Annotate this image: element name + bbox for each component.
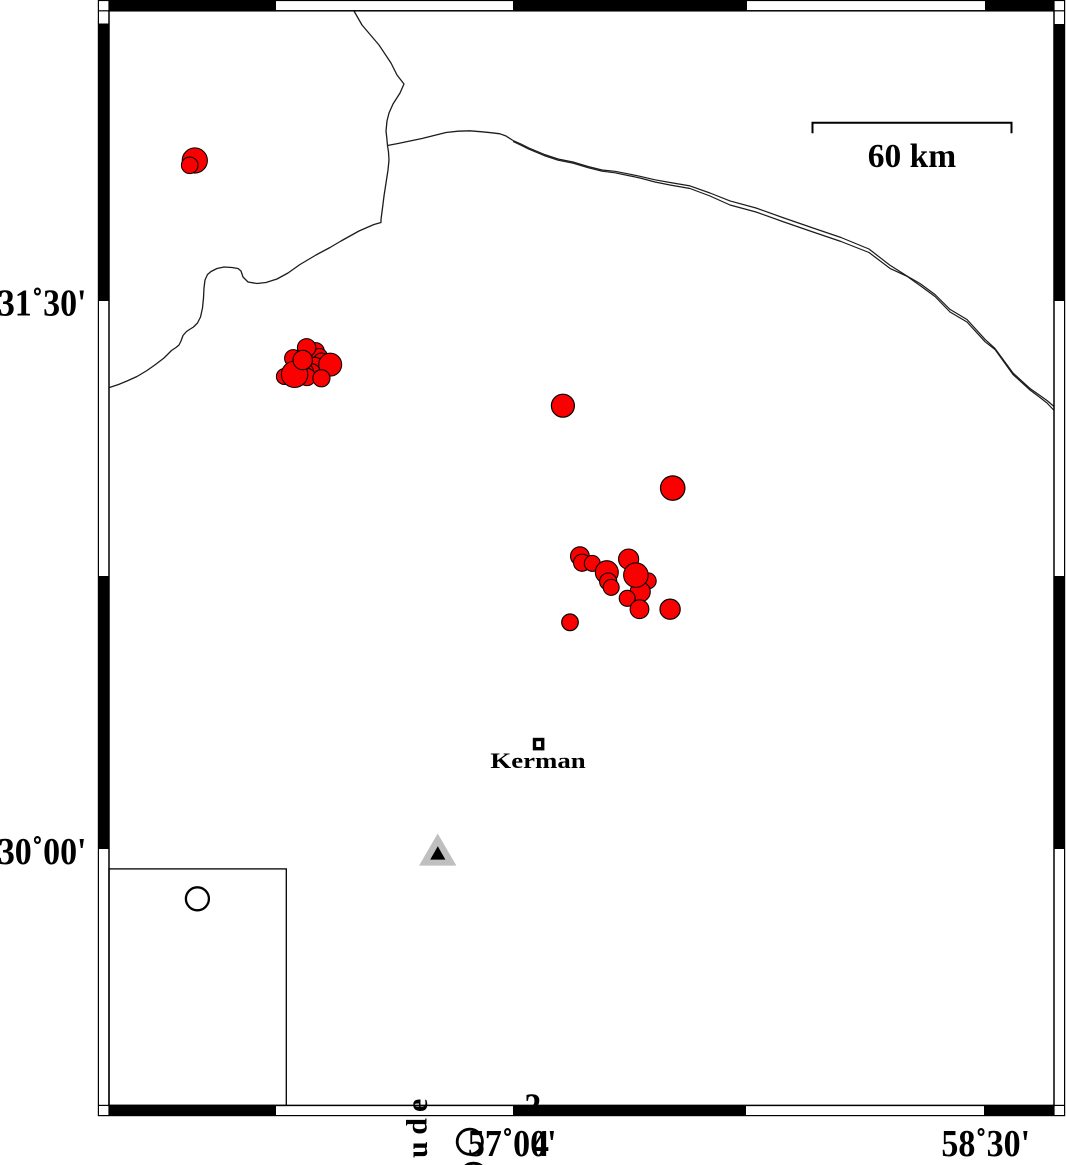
svg-text:31˚30': 31˚30' — [0, 282, 87, 324]
svg-text:Kerman: Kerman — [490, 749, 586, 773]
svg-text:58˚30': 58˚30' — [941, 1122, 1030, 1164]
svg-text:30˚00': 30˚00' — [0, 830, 87, 872]
svg-text:4: 4 — [532, 1122, 549, 1164]
svg-text:e: e — [401, 1099, 434, 1112]
svg-text:u: u — [401, 1141, 434, 1158]
svg-text:60 km: 60 km — [868, 138, 957, 175]
svg-text:d: d — [401, 1118, 434, 1135]
